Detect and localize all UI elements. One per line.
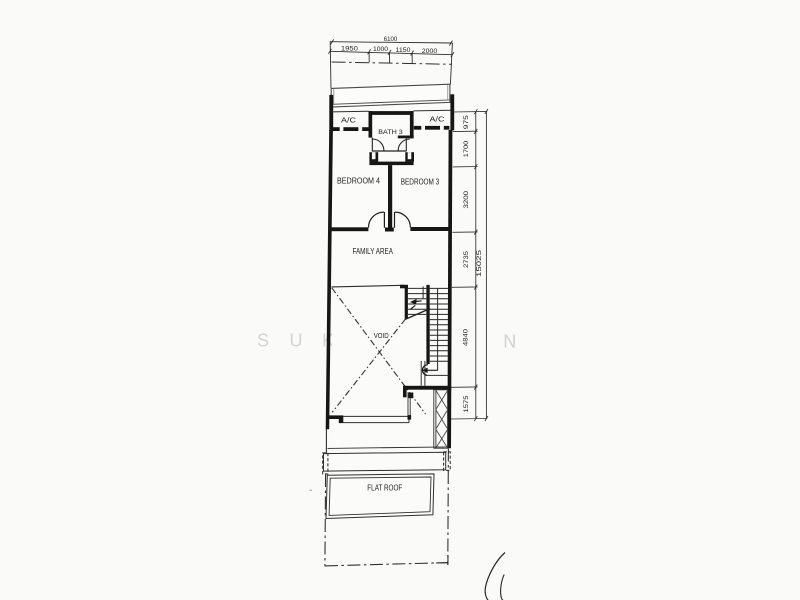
svg-text:2000: 2000 [422, 48, 438, 55]
svg-text:U: U [290, 331, 303, 351]
svg-text:6100: 6100 [384, 36, 398, 43]
svg-text:N: N [503, 332, 516, 352]
svg-text:1950: 1950 [341, 45, 358, 52]
svg-text:975: 975 [463, 115, 470, 129]
svg-text:2735: 2735 [463, 251, 470, 268]
svg-text:VOID: VOID [374, 331, 389, 340]
svg-text:A/C: A/C [430, 115, 445, 124]
svg-text:BATH 3: BATH 3 [378, 129, 403, 136]
svg-text:4840: 4840 [463, 329, 470, 346]
svg-text:S: S [257, 331, 269, 351]
svg-text:FLAT ROOF: FLAT ROOF [367, 483, 402, 492]
svg-text:15025: 15025 [476, 250, 483, 277]
svg-text:1575: 1575 [463, 395, 470, 412]
svg-text:BEDROOM 4: BEDROOM 4 [337, 177, 381, 186]
svg-text:1000: 1000 [373, 46, 388, 53]
svg-text:1150: 1150 [396, 47, 411, 54]
svg-text:FAMILY AREA: FAMILY AREA [352, 247, 393, 256]
svg-text:3200: 3200 [463, 191, 470, 209]
svg-text:1700: 1700 [463, 140, 470, 157]
svg-text:A/C: A/C [341, 115, 356, 124]
svg-text:BEDROOM 3: BEDROOM 3 [401, 177, 440, 186]
